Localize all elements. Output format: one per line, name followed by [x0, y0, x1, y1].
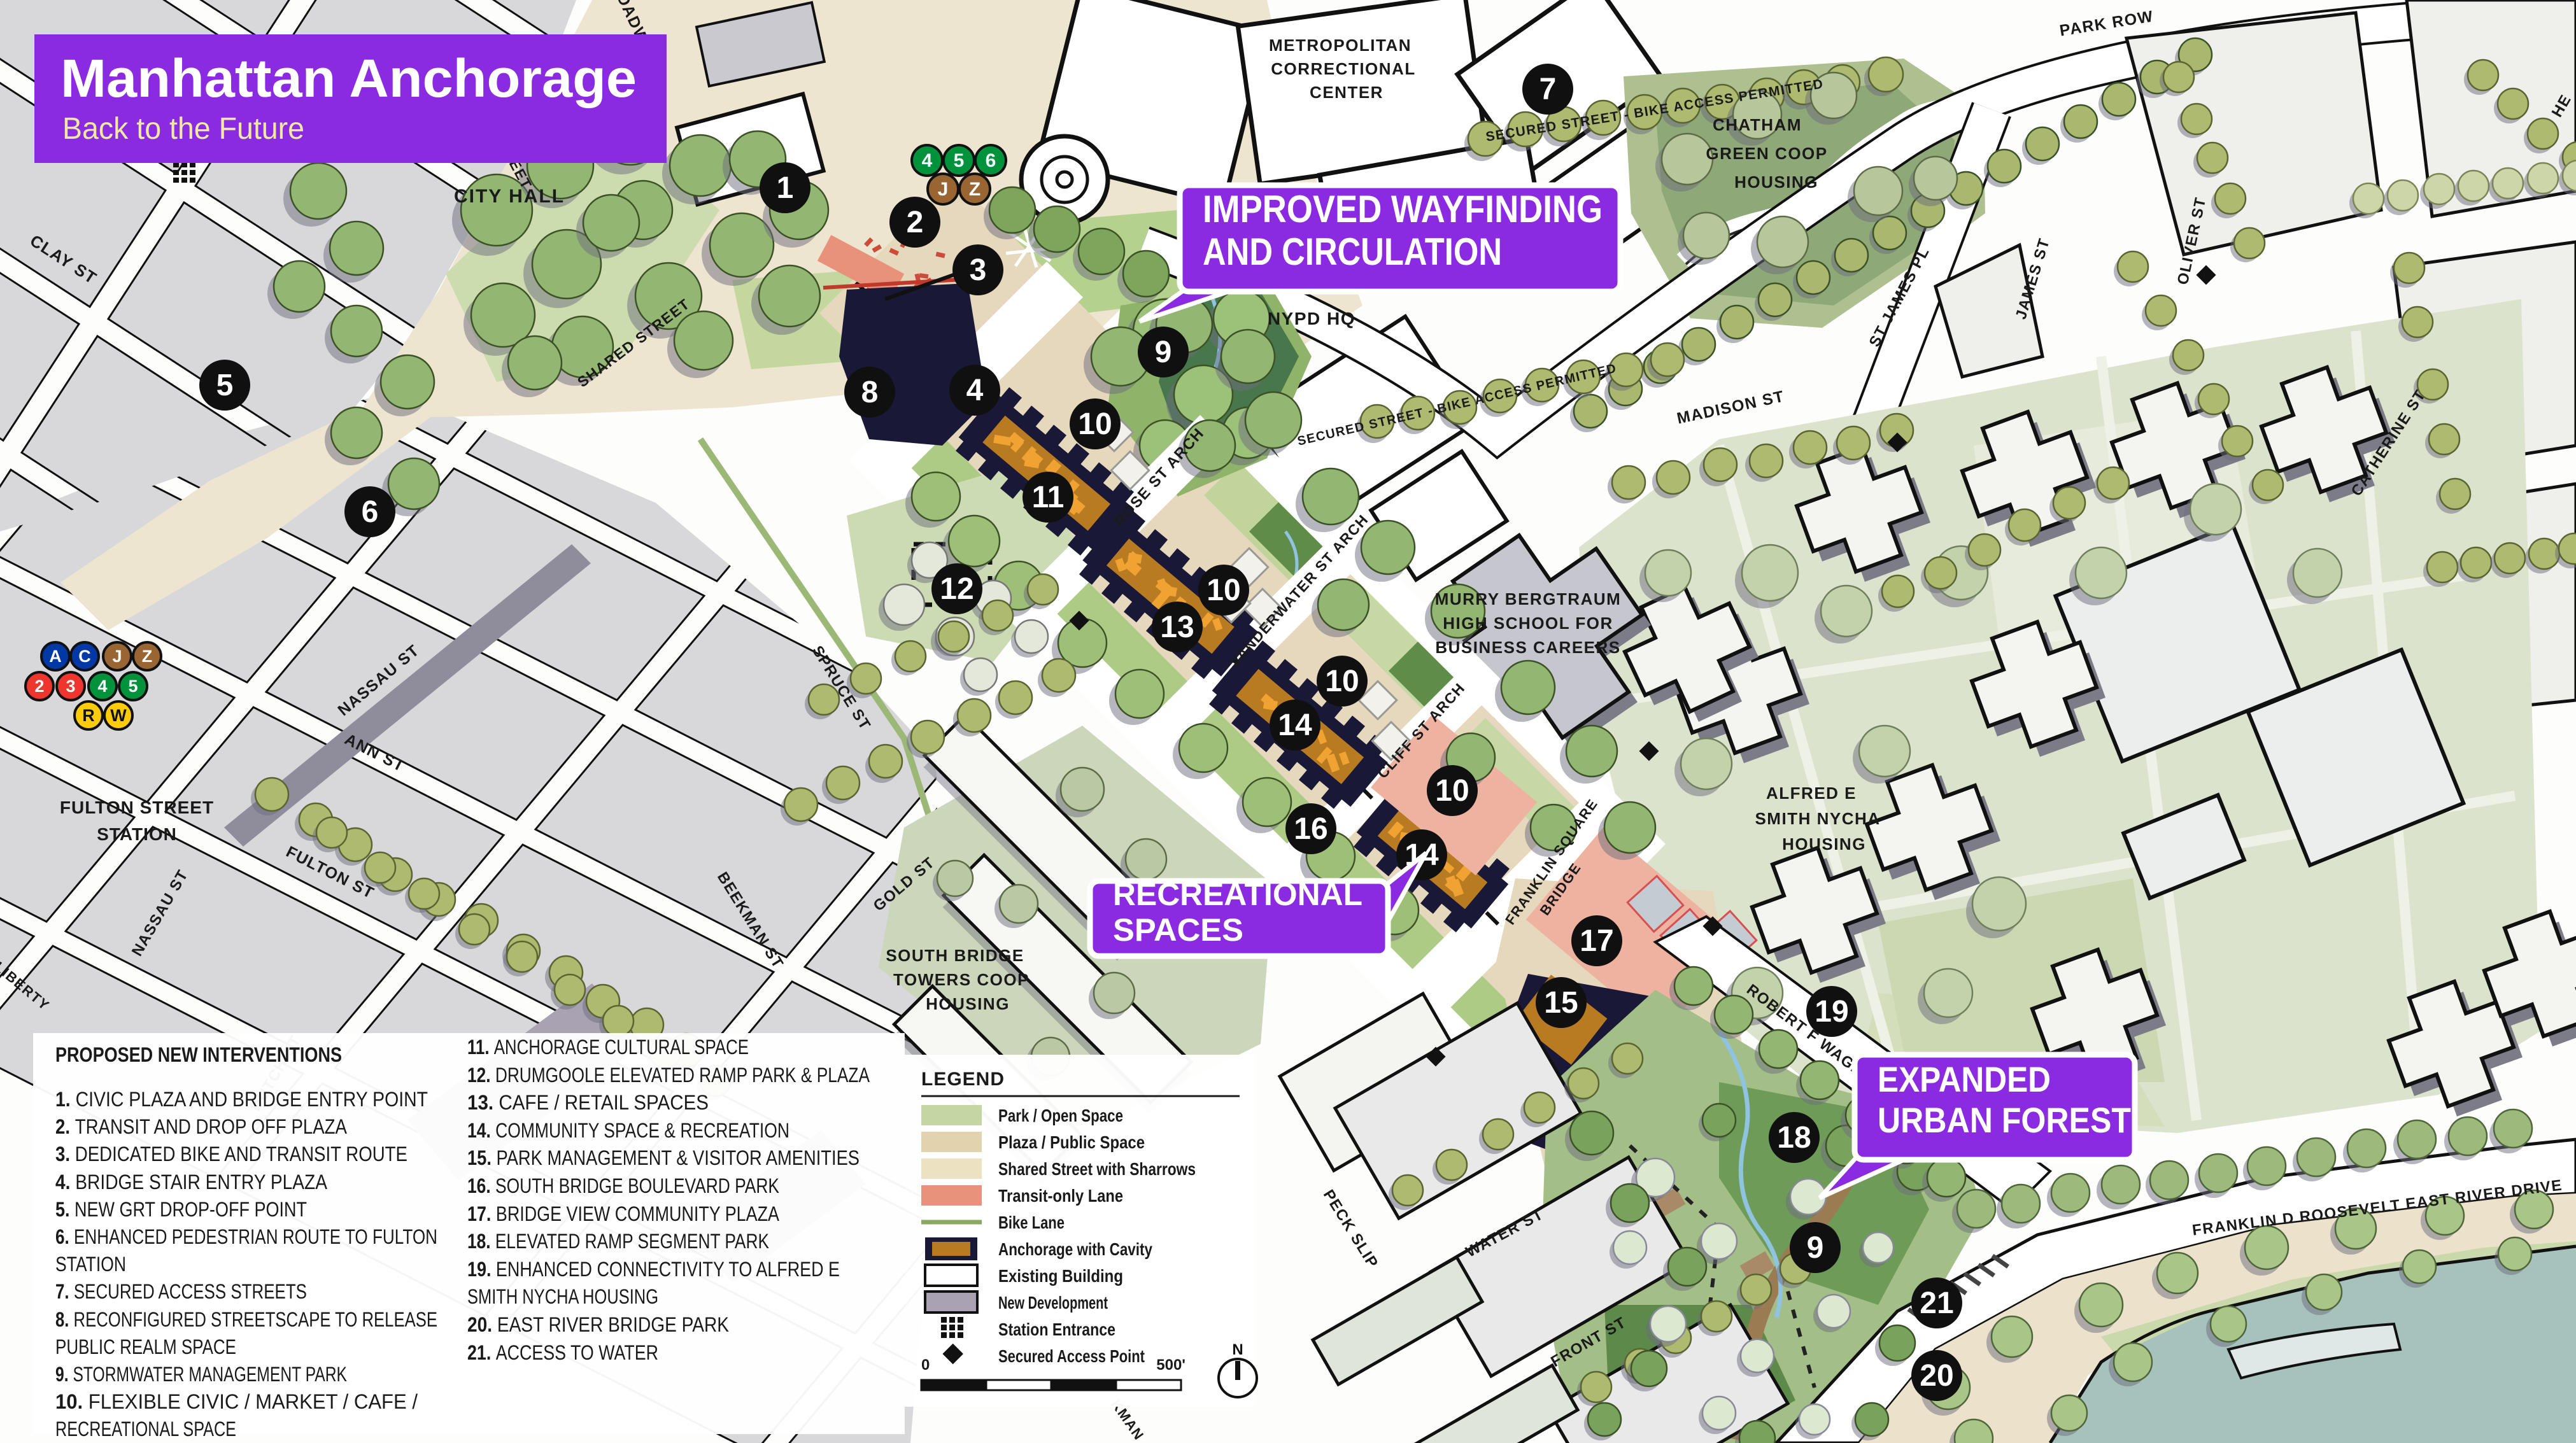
- svg-text:12: 12: [940, 572, 973, 606]
- svg-text:HIGH SCHOOL FOR: HIGH SCHOOL FOR: [1443, 614, 1613, 633]
- svg-text:Bike Lane: Bike Lane: [998, 1213, 1065, 1232]
- svg-text:Z: Z: [969, 179, 980, 200]
- svg-text:19: 19: [1815, 995, 1848, 1029]
- svg-text:16: 16: [1294, 812, 1327, 846]
- svg-text:STATION: STATION: [55, 1253, 126, 1276]
- svg-text:Existing Building: Existing Building: [998, 1266, 1123, 1286]
- svg-text:URBAN FOREST: URBAN FOREST: [1878, 1100, 2131, 1140]
- svg-text:Shared Street with Sharrows: Shared Street with Sharrows: [998, 1159, 1196, 1179]
- svg-text:Plaza / Public Space: Plaza / Public Space: [998, 1132, 1145, 1152]
- svg-text:9: 9: [1807, 1231, 1824, 1265]
- svg-text:21: 21: [1920, 1286, 1953, 1320]
- svg-text:3: 3: [970, 253, 987, 287]
- svg-text:3: 3: [66, 677, 75, 696]
- svg-text:MURRY BERGTRAUM: MURRY BERGTRAUM: [1435, 589, 1622, 609]
- svg-text:EXPANDED: EXPANDED: [1878, 1059, 2051, 1099]
- svg-text:SOUTH BRIDGE: SOUTH BRIDGE: [886, 946, 1024, 965]
- svg-text:4: 4: [97, 677, 107, 696]
- svg-text:J: J: [938, 179, 949, 200]
- svg-text:HOUSING: HOUSING: [1782, 834, 1866, 854]
- svg-text:CITY HALL: CITY HALL: [454, 186, 565, 207]
- svg-text:12. DRUMGOOLE ELEVATED RAMP PA: 12. DRUMGOOLE ELEVATED RAMP PARK & PLAZA: [467, 1064, 870, 1087]
- svg-text:7: 7: [1539, 73, 1557, 106]
- svg-text:4. BRIDGE STAIR ENTRY PLAZA: 4. BRIDGE STAIR ENTRY PLAZA: [55, 1171, 328, 1193]
- svg-text:20. EAST RIVER BRIDGE PARK: 20. EAST RIVER BRIDGE PARK: [467, 1313, 729, 1336]
- svg-text:5: 5: [216, 369, 234, 402]
- svg-text:16. SOUTH BRIDGE BOULEVARD PAR: 16. SOUTH BRIDGE BOULEVARD PARK: [467, 1174, 779, 1197]
- svg-text:7. SECURED ACCESS STREETS: 7. SECURED ACCESS STREETS: [55, 1280, 307, 1303]
- svg-text:SMITH NYCHA HOUSING: SMITH NYCHA HOUSING: [467, 1285, 658, 1308]
- svg-text:Secured Access Point: Secured Access Point: [998, 1346, 1145, 1366]
- svg-text:10: 10: [1435, 774, 1469, 808]
- svg-text:CORRECTIONAL: CORRECTIONAL: [1271, 59, 1415, 78]
- svg-text:ALFRED E: ALFRED E: [1766, 784, 1857, 803]
- svg-text:CHATHAM: CHATHAM: [1713, 115, 1802, 134]
- svg-text:Anchorage with Cavity: Anchorage with Cavity: [998, 1239, 1152, 1259]
- svg-text:Back to the Future: Back to the Future: [62, 112, 304, 146]
- svg-text:Transit-only Lane: Transit-only Lane: [998, 1186, 1123, 1206]
- svg-text:6. ENHANCED PEDESTRIAN ROUTE T: 6. ENHANCED PEDESTRIAN ROUTE TO FULTON: [55, 1225, 437, 1248]
- svg-text:5. NEW GRT DROP-OFF POINT: 5. NEW GRT DROP-OFF POINT: [55, 1198, 307, 1221]
- svg-text:9. STORMWATER MANAGEMENT PARK: 9. STORMWATER MANAGEMENT PARK: [55, 1363, 347, 1386]
- svg-text:2: 2: [34, 677, 44, 696]
- svg-text:13: 13: [1160, 610, 1194, 644]
- svg-text:0: 0: [921, 1356, 930, 1374]
- svg-text:2. TRANSIT AND DROP OFF PLAZA: 2. TRANSIT AND DROP OFF PLAZA: [55, 1115, 348, 1138]
- svg-text:SMITH NYCHA: SMITH NYCHA: [1755, 809, 1880, 828]
- svg-text:HOUSING: HOUSING: [926, 994, 1010, 1013]
- svg-text:R: R: [82, 706, 95, 725]
- svg-text:Station Entrance: Station Entrance: [998, 1320, 1115, 1339]
- svg-text:6: 6: [986, 150, 996, 171]
- svg-text:15. PARK MANAGEMENT & VISITOR: 15. PARK MANAGEMENT & VISITOR AMENITIES: [467, 1146, 860, 1169]
- svg-text:1: 1: [777, 171, 794, 205]
- svg-text:6: 6: [362, 495, 379, 529]
- svg-text:BUSINESS CAREERS: BUSINESS CAREERS: [1435, 638, 1620, 657]
- svg-text:14: 14: [1278, 708, 1312, 742]
- svg-text:RECREATIONAL: RECREATIONAL: [1113, 876, 1362, 912]
- svg-text:15: 15: [1544, 986, 1578, 1020]
- svg-text:18. ELEVATED RAMP SEGMENT PARK: 18. ELEVATED RAMP SEGMENT PARK: [467, 1230, 769, 1253]
- svg-text:5: 5: [954, 150, 965, 171]
- svg-text:N: N: [1232, 1341, 1243, 1358]
- svg-text:10: 10: [1207, 574, 1240, 607]
- svg-text:13. CAFE / RETAIL SPACES: 13. CAFE / RETAIL SPACES: [467, 1091, 709, 1114]
- svg-text:Manhattan Anchorage: Manhattan Anchorage: [60, 48, 637, 108]
- svg-text:RECREATIONAL SPACE: RECREATIONAL SPACE: [55, 1418, 236, 1440]
- svg-text:1. CIVIC PLAZA AND BRIDGE ENTR: 1. CIVIC PLAZA AND BRIDGE ENTRY POINT: [55, 1088, 428, 1111]
- svg-text:Z: Z: [142, 647, 153, 666]
- svg-text:STATION: STATION: [97, 824, 177, 844]
- svg-text:Park / Open Space: Park / Open Space: [998, 1106, 1123, 1125]
- svg-text:8. RECONFIGURED STREETSCAPE TO: 8. RECONFIGURED STREETSCAPE TO RELEASE: [55, 1308, 437, 1331]
- svg-text:4: 4: [966, 374, 984, 407]
- svg-text:8: 8: [861, 376, 879, 409]
- svg-text:17. BRIDGE VIEW COMMUNITY PLAZ: 17. BRIDGE VIEW COMMUNITY PLAZA: [467, 1202, 780, 1225]
- svg-text:21. ACCESS TO WATER: 21. ACCESS TO WATER: [467, 1341, 658, 1364]
- svg-text:IMPROVED WAYFINDING: IMPROVED WAYFINDING: [1203, 188, 1603, 230]
- svg-text:PUBLIC REALM SPACE: PUBLIC REALM SPACE: [55, 1335, 236, 1358]
- svg-text:11: 11: [1032, 481, 1065, 514]
- svg-text:TOWERS COOP: TOWERS COOP: [893, 970, 1030, 989]
- svg-text:GREEN COOP: GREEN COOP: [1706, 144, 1827, 163]
- svg-text:HOUSING: HOUSING: [1734, 172, 1818, 192]
- svg-text:9: 9: [1155, 335, 1172, 369]
- svg-text:PROPOSED NEW INTERVENTIONS: PROPOSED NEW INTERVENTIONS: [55, 1043, 342, 1066]
- svg-text:18: 18: [1777, 1121, 1811, 1155]
- svg-text:20: 20: [1920, 1359, 1953, 1393]
- svg-text:14. COMMUNITY SPACE & RECREATI: 14. COMMUNITY SPACE & RECREATION: [467, 1119, 789, 1142]
- svg-text:C: C: [78, 647, 91, 666]
- svg-text:500': 500': [1156, 1356, 1185, 1374]
- svg-text:5: 5: [128, 677, 138, 696]
- svg-text:4: 4: [922, 150, 933, 171]
- svg-text:2: 2: [907, 206, 924, 239]
- svg-text:10: 10: [1078, 407, 1112, 441]
- svg-text:19. ENHANCED CONNECTIVITY TO A: 19. ENHANCED CONNECTIVITY TO ALFRED E: [467, 1258, 840, 1281]
- svg-text:AND CIRCULATION: AND CIRCULATION: [1203, 230, 1502, 273]
- svg-text:3. DEDICATED BIKE AND TRANSIT: 3. DEDICATED BIKE AND TRANSIT ROUTE: [55, 1143, 407, 1165]
- svg-text:LEGEND: LEGEND: [921, 1069, 1005, 1090]
- svg-text:New Development: New Development: [998, 1293, 1108, 1313]
- svg-text:NYPD HQ: NYPD HQ: [1268, 309, 1355, 328]
- svg-text:11. ANCHORAGE CULTURAL SPACE: 11. ANCHORAGE CULTURAL SPACE: [467, 1036, 749, 1059]
- svg-text:17: 17: [1580, 924, 1613, 958]
- svg-text:J: J: [112, 647, 122, 666]
- svg-text:A: A: [49, 647, 62, 666]
- svg-text:CENTER: CENTER: [1310, 83, 1384, 102]
- svg-text:METROPOLITAN: METROPOLITAN: [1269, 36, 1412, 55]
- svg-text:10: 10: [1325, 665, 1359, 698]
- svg-text:W: W: [110, 706, 127, 725]
- svg-text:SPACES: SPACES: [1113, 912, 1243, 948]
- svg-text:FULTON STREET: FULTON STREET: [60, 798, 214, 817]
- svg-text:10. FLEXIBLE CIVIC / MARKET /: 10. FLEXIBLE CIVIC / MARKET / CAFE /: [55, 1390, 418, 1413]
